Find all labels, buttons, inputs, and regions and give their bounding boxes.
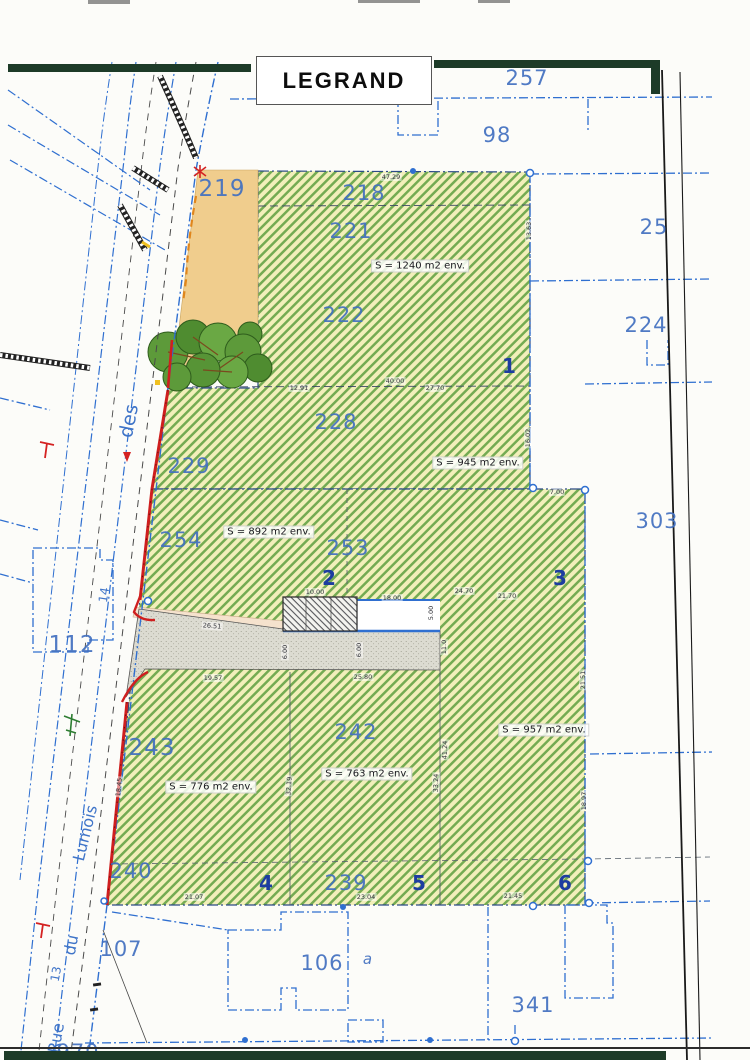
cadastral-map-page: LEGRAND 257 98 219 218 221 222 25 224 22… [0,0,750,1060]
dim-label: 5.00 [427,605,435,621]
scan-line-bottom [0,1047,750,1049]
title-block: LEGRAND [256,56,432,105]
lot-label-1: 1 [502,354,516,378]
dim-label: 27.70 [425,384,446,392]
dim-label: 10.00 [305,588,326,596]
dim-label: 7.00 [549,488,565,496]
scan-bar-top-left [8,64,251,72]
green-symbol [64,714,80,736]
dim-label: 40.00 [385,377,406,385]
dim-label: 21.45 [503,892,524,900]
dim-label: 6.00 [281,644,289,660]
lot-label-3: 3 [553,566,567,590]
parcel-label-253: 253 [326,536,369,560]
dim-label: 23.04 [356,893,377,901]
parcel-label-341: 341 [511,993,554,1017]
surface-label-776: S = 776 m2 env. [165,781,256,794]
parcel-label-303: 303 [635,509,678,533]
parcel-label-240: 240 [109,859,152,883]
dim-label: 47.29 [381,173,402,181]
dim-label: 21.07 [184,893,205,901]
dim-label: 12.91 [289,384,310,392]
parcel-label-228: 228 [314,410,357,434]
red-t-symbol [36,442,54,938]
parcel-label-222: 222 [322,303,365,327]
parcel-label-242: 242 [334,720,377,744]
parcel-label-219: 219 [199,176,246,202]
parcel-label-98: 98 [483,123,512,147]
parcel-label-229: 229 [167,454,210,478]
parcel-label-112: 112 [49,632,96,658]
parcel-label-239: 239 [324,871,367,895]
trees [148,320,272,391]
scan-mark-top [478,0,510,3]
parcel-label-243: 243 [129,735,176,761]
dim-label: 25.80 [353,673,374,681]
street-tick [93,982,101,986]
parcel-label-254: 254 [159,528,202,552]
parcel-label-218: 218 [342,181,385,205]
dim-label: 18.97 [580,791,588,812]
dim-label: 24.70 [454,587,475,595]
plan-title: LEGRAND [283,68,406,94]
dim-label: 18.00 [382,594,403,602]
dim-label: 21.51 [579,670,587,691]
dim-label: 13.63 [525,221,533,242]
parcel-label-257: 257 [505,66,548,90]
dim-label: 41.24 [441,740,450,761]
dim-label: 16.02 [524,428,532,449]
dim-label: 21.70 [497,592,518,600]
surface-label-1240: S = 1240 m2 env. [371,260,469,273]
dim-label: 11.0 [440,639,448,655]
parcel-label-107: 107 [99,937,142,961]
yellow-marker [155,380,160,385]
dim-label: 19.57 [203,674,224,682]
building-341 [565,905,613,998]
lot-label-6: 6 [558,871,572,895]
scan-bar-top-vertical [651,60,660,94]
dim-label: 6.00 [355,642,363,658]
lot-label-2: 2 [322,566,336,590]
street-tick [90,1007,98,1011]
parcel-label-a: a [363,950,373,968]
surface-label-957: S = 957 m2 env. [498,724,589,737]
parcel-label-106: 106 [300,951,343,975]
scan-bar-bottom [4,1051,666,1060]
dim-label: 33.24 [432,773,441,794]
dim-label: 32.19 [284,775,293,796]
lot-label-5: 5 [412,871,426,895]
street-label-du: du [60,933,83,957]
scan-bar-top-right [434,60,654,68]
road-width-13: 13 [48,965,65,983]
scan-mark-top [88,0,130,4]
surface-label-763: S = 763 m2 env. [321,768,412,781]
parcel-label-25: 25 [640,215,669,239]
surface-label-945: S = 945 m2 env. [432,457,523,470]
scan-mark-top [358,0,420,3]
road-width-14: 14 [96,586,112,603]
parcel-label-221: 221 [329,219,372,243]
parcel-label-224: 224 [624,313,667,337]
red-triangle-marker [123,452,131,462]
surface-label-892: S = 892 m2 env. [223,526,314,539]
lot-label-4: 4 [259,871,273,895]
dim-label: 26.51 [201,621,222,630]
